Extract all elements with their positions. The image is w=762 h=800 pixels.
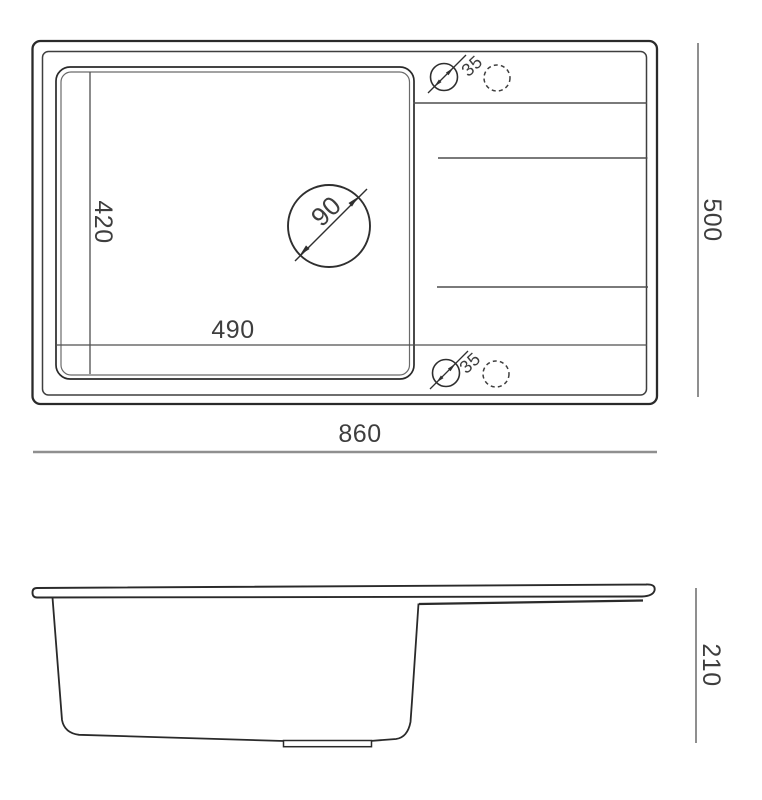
drain-arrow-lower-icon xyxy=(300,245,310,255)
bowl-width-label: 490 xyxy=(211,316,254,344)
drain-hole: 90 xyxy=(288,185,370,267)
side-height-label: 210 xyxy=(697,643,725,686)
tap-hole-top-optional-circle xyxy=(484,65,510,91)
tap-hole-top-label: 35 xyxy=(457,52,486,81)
sink-outer-edge xyxy=(33,41,658,404)
tap-hole-bottom-optional-circle xyxy=(483,361,509,387)
tap-hole-bottom: 35 xyxy=(430,349,509,389)
bowl-depth-label: 420 xyxy=(89,200,117,243)
drawing-svg: 90 35 35 420 49 xyxy=(0,0,762,800)
side-bowl-profile xyxy=(53,598,419,742)
drain-diameter-label: 90 xyxy=(305,190,347,232)
overall-depth-label: 500 xyxy=(698,198,726,241)
side-drain-boss xyxy=(284,741,372,747)
side-view: 210 xyxy=(33,584,726,746)
tap-hole-top-diameter-line xyxy=(428,55,466,93)
tap-hole-top: 35 xyxy=(428,52,510,93)
overall-width-label: 860 xyxy=(338,420,381,448)
side-drainboard-underside xyxy=(419,601,643,605)
sink-technical-drawing: 90 35 35 420 49 xyxy=(0,0,762,800)
side-rim-bar xyxy=(33,584,655,597)
top-view: 90 35 35 420 49 xyxy=(33,41,727,452)
